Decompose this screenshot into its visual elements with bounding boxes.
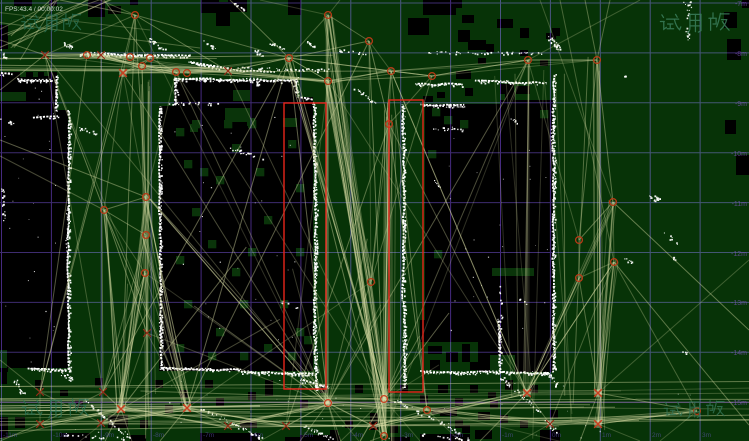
svg-text:FPS:43.4 / 00:00:02: FPS:43.4 / 00:00:02 bbox=[5, 6, 63, 13]
svg-text:-13m: -13m bbox=[731, 300, 747, 307]
svg-text:-9m: -9m bbox=[103, 432, 114, 439]
svg-text:0m: 0m bbox=[552, 432, 561, 439]
svg-text:-10m: -10m bbox=[53, 432, 68, 439]
svg-text:-7m: -7m bbox=[735, 1, 747, 8]
svg-text:-10m: -10m bbox=[731, 151, 747, 158]
svg-text:-8m: -8m bbox=[735, 51, 747, 58]
svg-text:-3m: -3m bbox=[402, 432, 413, 439]
svg-text:2m: 2m bbox=[652, 432, 661, 439]
svg-text:-11m: -11m bbox=[3, 432, 17, 439]
svg-text:1m: 1m bbox=[602, 432, 611, 439]
svg-text:-8m: -8m bbox=[153, 432, 164, 439]
svg-text:-9m: -9m bbox=[735, 101, 747, 108]
svg-text:-7m: -7m bbox=[203, 432, 214, 439]
svg-text:-6m: -6m bbox=[252, 432, 263, 439]
svg-text:-2m: -2m bbox=[452, 432, 463, 439]
svg-text:-15m: -15m bbox=[731, 400, 747, 407]
svg-text:-14m: -14m bbox=[731, 350, 747, 357]
svg-text:-4m: -4m bbox=[352, 432, 363, 439]
svg-text:-12m: -12m bbox=[731, 251, 747, 258]
svg-text:3m: 3m bbox=[702, 432, 711, 439]
svg-text:-11m: -11m bbox=[732, 201, 748, 208]
svg-text:-5m: -5m bbox=[302, 432, 313, 439]
svg-text:-1m: -1m bbox=[502, 432, 513, 439]
